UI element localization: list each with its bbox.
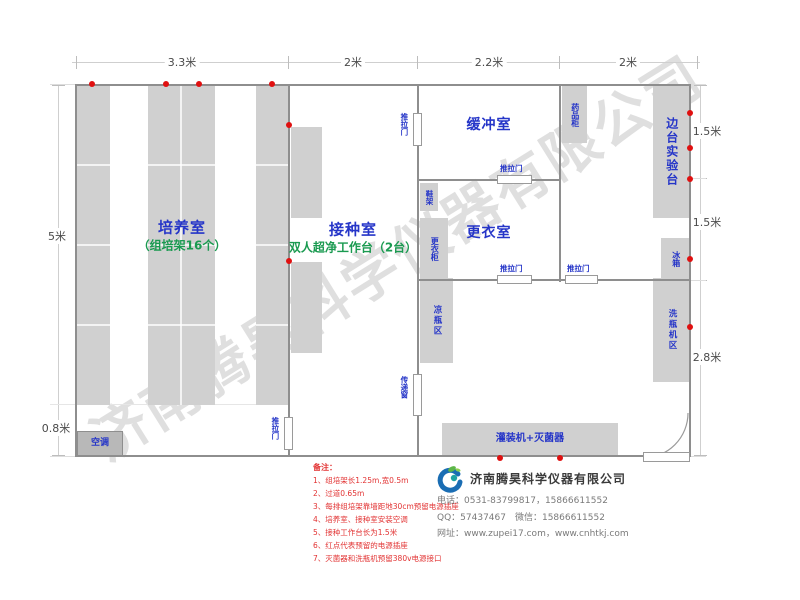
fridge-label: 冰箱 <box>671 251 679 267</box>
sliding-door-buffer <box>497 175 532 184</box>
culture-room-label: 培养室 <box>158 217 206 238</box>
company-logo-icon <box>434 464 466 496</box>
socket-dot <box>687 324 693 330</box>
dim-top-1: 3.3米 <box>165 54 200 70</box>
dim-left-2: 0.8米 <box>39 420 74 436</box>
sliding-door-changing-1 <box>497 275 532 284</box>
wall-culture-inoculation <box>288 84 290 457</box>
side-bench: 边台实验台 <box>653 86 690 218</box>
company-website: 网址：www.zupei17.com，www.cnhtkj.com <box>437 526 629 539</box>
socket-dot <box>497 455 503 461</box>
filler-sterilizer-label: 灌装机+灭菌器 <box>496 434 564 445</box>
sliding-door-label-3: 推拉门 <box>500 165 523 173</box>
changing-room-label: 更衣室 <box>467 222 512 242</box>
socket-dot <box>163 81 169 87</box>
inoculation-room-sub: 双人超净工作台（2台） <box>289 239 417 256</box>
inoculation-room-label: 接种室 <box>329 219 377 240</box>
socket-dot <box>286 258 292 264</box>
socket-dot <box>286 122 292 128</box>
sliding-door-inoculation-top <box>413 113 422 146</box>
pass-window <box>413 374 422 416</box>
socket-dot <box>687 176 693 182</box>
socket-dot <box>687 145 693 151</box>
socket-dot <box>687 110 693 116</box>
shoe-rack: 鞋架 <box>420 183 438 211</box>
socket-dot <box>687 256 693 262</box>
entry-door-leaf <box>643 452 690 462</box>
note-item: 6、红点代表预留的电源插座 <box>313 539 459 552</box>
wall-left <box>75 84 77 457</box>
company-phone: 电话：0531-83799817，15866611552 <box>437 493 608 506</box>
socket-dot <box>89 81 95 87</box>
dim-left-1: 5米 <box>45 228 69 244</box>
culture-room-sub: （组培架16个） <box>138 237 227 254</box>
wall-buffer-east <box>559 84 561 282</box>
note-item: 7、灭菌器和洗瓶机预留380v电源接口 <box>313 552 459 565</box>
socket-dot <box>196 81 202 87</box>
floor-plan-canvas: 济南腾昊科学仪器有限公司 3.3米 2米 2.2米 2米 5米 0.8米 1.5… <box>0 0 800 600</box>
sliding-door-label-4: 推拉门 <box>500 265 523 273</box>
dim-right-2: 1.5米 <box>690 214 725 230</box>
side-bench-label: 边台实验台 <box>665 117 678 187</box>
buffer-room-label: 缓冲室 <box>467 114 512 134</box>
cool-bottle-area-label: 凉瓶区 <box>432 305 441 337</box>
air-conditioner-label: 空调 <box>91 439 109 448</box>
medicine-cabinet: 药品柜 <box>562 86 587 143</box>
fridge: 冰箱 <box>661 238 690 280</box>
dim-right-1: 1.5米 <box>690 123 725 139</box>
clean-bench-1 <box>291 127 322 218</box>
wardrobe: 更衣柜 <box>420 218 448 280</box>
sliding-door-label-1: 推拉门 <box>400 113 408 136</box>
wall-changing-south <box>417 279 691 281</box>
dim-right-3: 2.8米 <box>690 349 725 365</box>
sliding-door-culture-bottom <box>284 417 293 450</box>
sliding-door-changing-2 <box>565 275 598 284</box>
wall-buffer-changing <box>417 179 561 181</box>
socket-dot <box>269 81 275 87</box>
clean-bench-2 <box>291 262 322 353</box>
pass-window-label: 传递窗 <box>400 376 408 399</box>
washer-area-label: 洗瓶机区 <box>667 309 676 351</box>
dim-top-2: 2米 <box>341 54 365 70</box>
company-qq-wechat: QQ：57437467 微信：15866611552 <box>437 510 605 523</box>
dim-top-4: 2米 <box>616 54 640 70</box>
air-conditioner: 空调 <box>77 431 123 456</box>
shoe-rack-label: 鞋架 <box>425 190 433 205</box>
washer-area: 洗瓶机区 <box>653 278 690 382</box>
wardrobe-label: 更衣柜 <box>430 237 438 261</box>
filler-sterilizer: 灌装机+灭菌器 <box>442 423 618 455</box>
company-name: 济南腾昊科学仪器有限公司 <box>470 470 626 487</box>
cool-bottle-area: 凉瓶区 <box>420 278 453 363</box>
sliding-door-label-2: 推拉门 <box>271 417 279 440</box>
socket-dot <box>557 455 563 461</box>
dim-top-3: 2.2米 <box>472 54 507 70</box>
sliding-door-label-5: 推拉门 <box>567 265 590 273</box>
medicine-cabinet-label: 药品柜 <box>570 103 578 127</box>
